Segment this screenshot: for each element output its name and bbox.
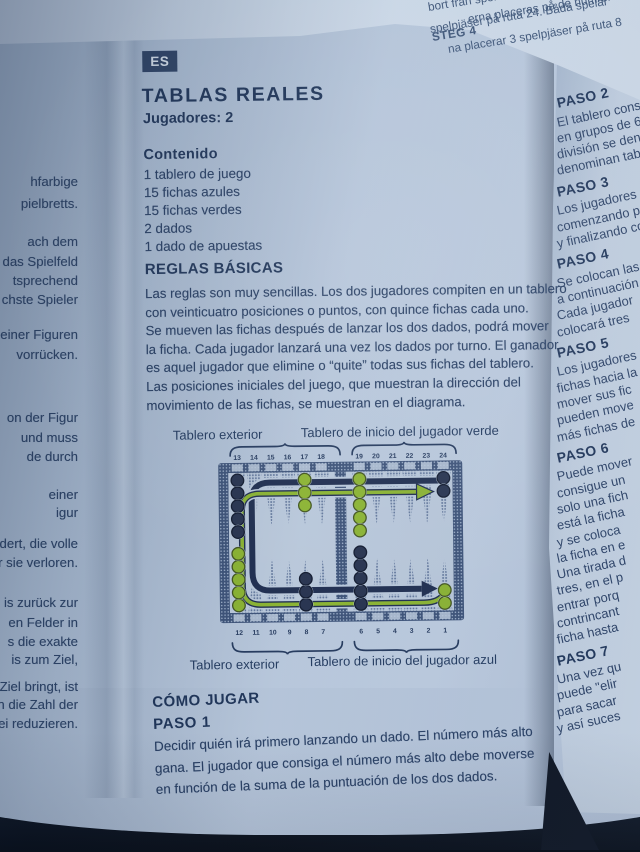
green-checker <box>353 473 366 486</box>
board-top-numbers: 131415161718192021222324 <box>233 452 447 462</box>
blue-checker <box>354 546 367 559</box>
green-checker <box>438 584 451 597</box>
underbrace-blue-home <box>353 639 459 654</box>
board-point-number: 20 <box>372 453 380 460</box>
board-point-number: 14 <box>250 455 258 462</box>
frame-slot <box>301 614 312 621</box>
frame-slot <box>371 463 382 470</box>
green-checker <box>298 473 311 486</box>
board-point-number: 2 <box>427 628 431 635</box>
frame-slot <box>249 464 260 471</box>
board-point-number: 22 <box>406 453 414 460</box>
green-checker <box>353 498 366 511</box>
blue-checker <box>231 474 244 487</box>
green-checker <box>298 486 311 499</box>
frame-slot <box>406 612 417 619</box>
board-bottom-numbers: 121110987654321 <box>235 627 447 637</box>
frame-slot <box>299 464 310 471</box>
board-point-number: 8 <box>305 629 309 636</box>
contents-list: 1 tablero de juego15 fichas azules15 fic… <box>144 165 263 256</box>
contents-item: 15 fichas verdes <box>144 201 262 220</box>
board-point-number: 5 <box>376 628 380 635</box>
blue-checker <box>300 598 313 611</box>
blue-checker <box>232 526 245 539</box>
board-point-number: 12 <box>235 630 243 637</box>
board-point-number: 23 <box>423 453 431 460</box>
green-checker <box>299 499 312 512</box>
language-badge: ES <box>142 51 177 72</box>
blue-checker <box>232 513 245 526</box>
diagram-label-green-home-board: Tablero de inicio del jugador verde <box>301 423 499 440</box>
frame-slot <box>354 463 365 470</box>
frame-slot <box>267 614 278 621</box>
underbrace-outer-board <box>231 641 343 656</box>
frame-slot <box>389 612 400 619</box>
green-checker <box>233 599 246 612</box>
contents-item: 1 tablero de juego <box>144 165 262 184</box>
contents-heading: Contenido <box>143 146 218 163</box>
blue-checker <box>354 585 367 598</box>
main-page-content: ES TABLAS REALES Jugadores: 2 Contenido … <box>0 0 640 852</box>
frame-slot <box>421 462 432 469</box>
board-point-number: 17 <box>301 454 309 461</box>
blue-checker <box>355 598 368 611</box>
page-title: TABLAS REALES <box>142 83 325 108</box>
green-checker <box>439 597 452 610</box>
how-to-play-section: CÓMO JUGAR PASO 1 Decidir quién irá prim… <box>152 679 536 801</box>
frame-slot <box>387 462 398 469</box>
board-point-number: 10 <box>269 629 277 636</box>
basic-rules-heading: REGLAS BÁSICAS <box>145 259 284 278</box>
photo-of-manual-page: { "colors":{"paper":"#b8c7da","ink":"#24… <box>0 0 640 850</box>
step1-paragraph: Decidir quién irá primero lanzando un da… <box>154 721 536 801</box>
green-checker <box>232 547 245 560</box>
blue-checker <box>437 484 450 497</box>
frame-slot <box>284 614 295 621</box>
board-point-number: 4 <box>393 628 397 635</box>
green-checker <box>353 485 366 498</box>
blue-checker <box>299 572 312 585</box>
frame-slot <box>316 463 327 470</box>
board-point-number: 18 <box>317 454 325 461</box>
contents-item: 2 dados <box>144 219 262 238</box>
green-checker <box>353 511 366 524</box>
green-checker <box>354 524 367 537</box>
board-point-number: 9 <box>288 629 292 636</box>
blue-checker <box>300 585 313 598</box>
frame-slot <box>318 613 329 620</box>
green-checker <box>232 586 245 599</box>
board-point-number: 11 <box>252 630 259 637</box>
board-point-number: 21 <box>389 453 397 460</box>
frame-slot <box>372 613 383 620</box>
board-point-number: 1 <box>443 627 447 634</box>
backgammon-board-diagram: 131415161718192021222324 121110987654321 <box>215 444 467 639</box>
green-checker <box>232 560 245 573</box>
blue-checker <box>231 487 244 500</box>
frame-slot <box>232 464 243 471</box>
board-point-number: 24 <box>439 452 447 459</box>
diagram-label-outer-board-bottom: Tablero exterior <box>190 656 280 672</box>
board-point-number: 3 <box>410 628 414 635</box>
contents-item: 15 fichas azules <box>144 183 262 202</box>
blue-checker <box>437 472 450 485</box>
blue-checker <box>354 559 367 572</box>
board-point-number: 7 <box>321 629 325 636</box>
contents-item: 1 dado de apuestas <box>144 237 262 256</box>
board-point-number: 13 <box>233 455 241 462</box>
board-point-number: 16 <box>284 454 292 461</box>
frame-slot <box>356 613 367 620</box>
board-point-number: 15 <box>267 455 275 462</box>
frame-slot <box>234 614 245 621</box>
basic-rules-paragraph: Las reglas son muy sencillas. Los dos ju… <box>145 280 568 415</box>
blue-checker <box>354 572 367 585</box>
frame-slot <box>438 462 449 469</box>
diagram-label-outer-board-top: Tablero exterior <box>173 427 263 443</box>
green-checker <box>232 573 245 586</box>
frame-slot <box>440 612 451 619</box>
frame-slot <box>265 464 276 471</box>
board-point-number: 6 <box>359 628 363 635</box>
frame-slot <box>250 614 261 621</box>
players-line: Jugadores: 2 <box>143 110 233 127</box>
blue-checker <box>231 500 244 513</box>
frame-slot <box>282 464 293 471</box>
frame-slot <box>404 462 415 469</box>
frame-slot <box>423 612 434 619</box>
board-point-number: 19 <box>355 453 363 460</box>
